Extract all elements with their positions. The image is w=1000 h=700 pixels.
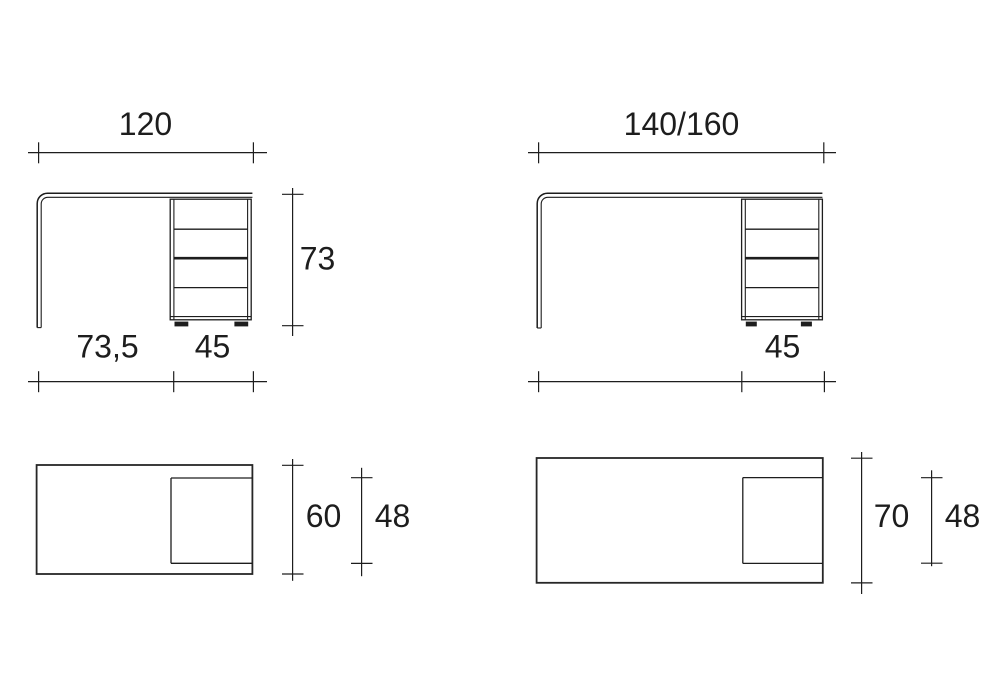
dim-desk-120-overall-width: 120 xyxy=(28,106,267,163)
dim-label-overall-height: 73 xyxy=(300,241,336,277)
dim-label-overall-depth: 70 xyxy=(874,498,910,534)
desk-120-front-view: 120 xyxy=(28,106,335,392)
desk-140-160-plan-view: 70 48 xyxy=(537,452,981,594)
dim-label-overall-width: 120 xyxy=(119,106,172,142)
worktop-outline xyxy=(537,458,823,583)
drawer-unit-plan-outline xyxy=(743,478,823,564)
worktop-outline xyxy=(37,465,253,574)
drawer-unit-foot-right xyxy=(801,322,812,327)
desk-140-160-body xyxy=(537,193,822,328)
spec-sheet-page: 120 xyxy=(0,0,1000,700)
drawer-unit-plan-outline xyxy=(171,478,252,563)
dim-label-drawer-unit-depth: 48 xyxy=(375,498,411,534)
dim-label-overall-depth: 60 xyxy=(306,498,342,534)
desk-panel-inner-contour xyxy=(541,197,822,328)
dim-desk-120-overall-depth: 60 xyxy=(282,459,341,581)
dim-label-overall-width: 140/160 xyxy=(624,106,740,142)
desk-120-drawer-unit xyxy=(170,199,251,326)
desk-panel-outer-contour xyxy=(537,193,822,328)
dimension-drawing-canvas: 120 xyxy=(0,0,1000,700)
drawer-unit-foot-left xyxy=(746,322,757,327)
dim-label-drawer-unit-width: 45 xyxy=(195,329,231,365)
dim-desk-120-bottom-split: 73,5 45 xyxy=(28,329,267,393)
dim-label-worktop-clear-width: 73,5 xyxy=(76,329,138,365)
dim-desk-120-overall-height: 73 xyxy=(282,188,335,336)
dim-desk-140-160-overall-width: 140/160 xyxy=(528,106,836,163)
dim-desk-140-160-drawer-unit-depth: 48 xyxy=(921,470,980,566)
dim-desk-140-160-bottom-split: 45 xyxy=(528,329,836,393)
dim-label-drawer-unit-width: 45 xyxy=(765,329,801,365)
desk-140-160-drawer-unit xyxy=(742,199,823,326)
desk-panel-inner-contour xyxy=(41,197,252,327)
desk-140-160-front-view: 140/160 xyxy=(528,106,836,392)
desk-120-body xyxy=(37,193,252,327)
dim-label-drawer-unit-depth: 48 xyxy=(945,498,981,534)
dim-desk-140-160-overall-depth: 70 xyxy=(851,452,909,594)
drawer-unit-foot-left xyxy=(175,322,189,327)
desk-panel-outer-contour xyxy=(37,193,252,327)
desk-120-plan-view: 60 48 xyxy=(37,459,411,581)
dim-desk-120-drawer-unit-depth: 48 xyxy=(351,468,410,576)
drawer-unit-foot-right xyxy=(234,322,248,327)
